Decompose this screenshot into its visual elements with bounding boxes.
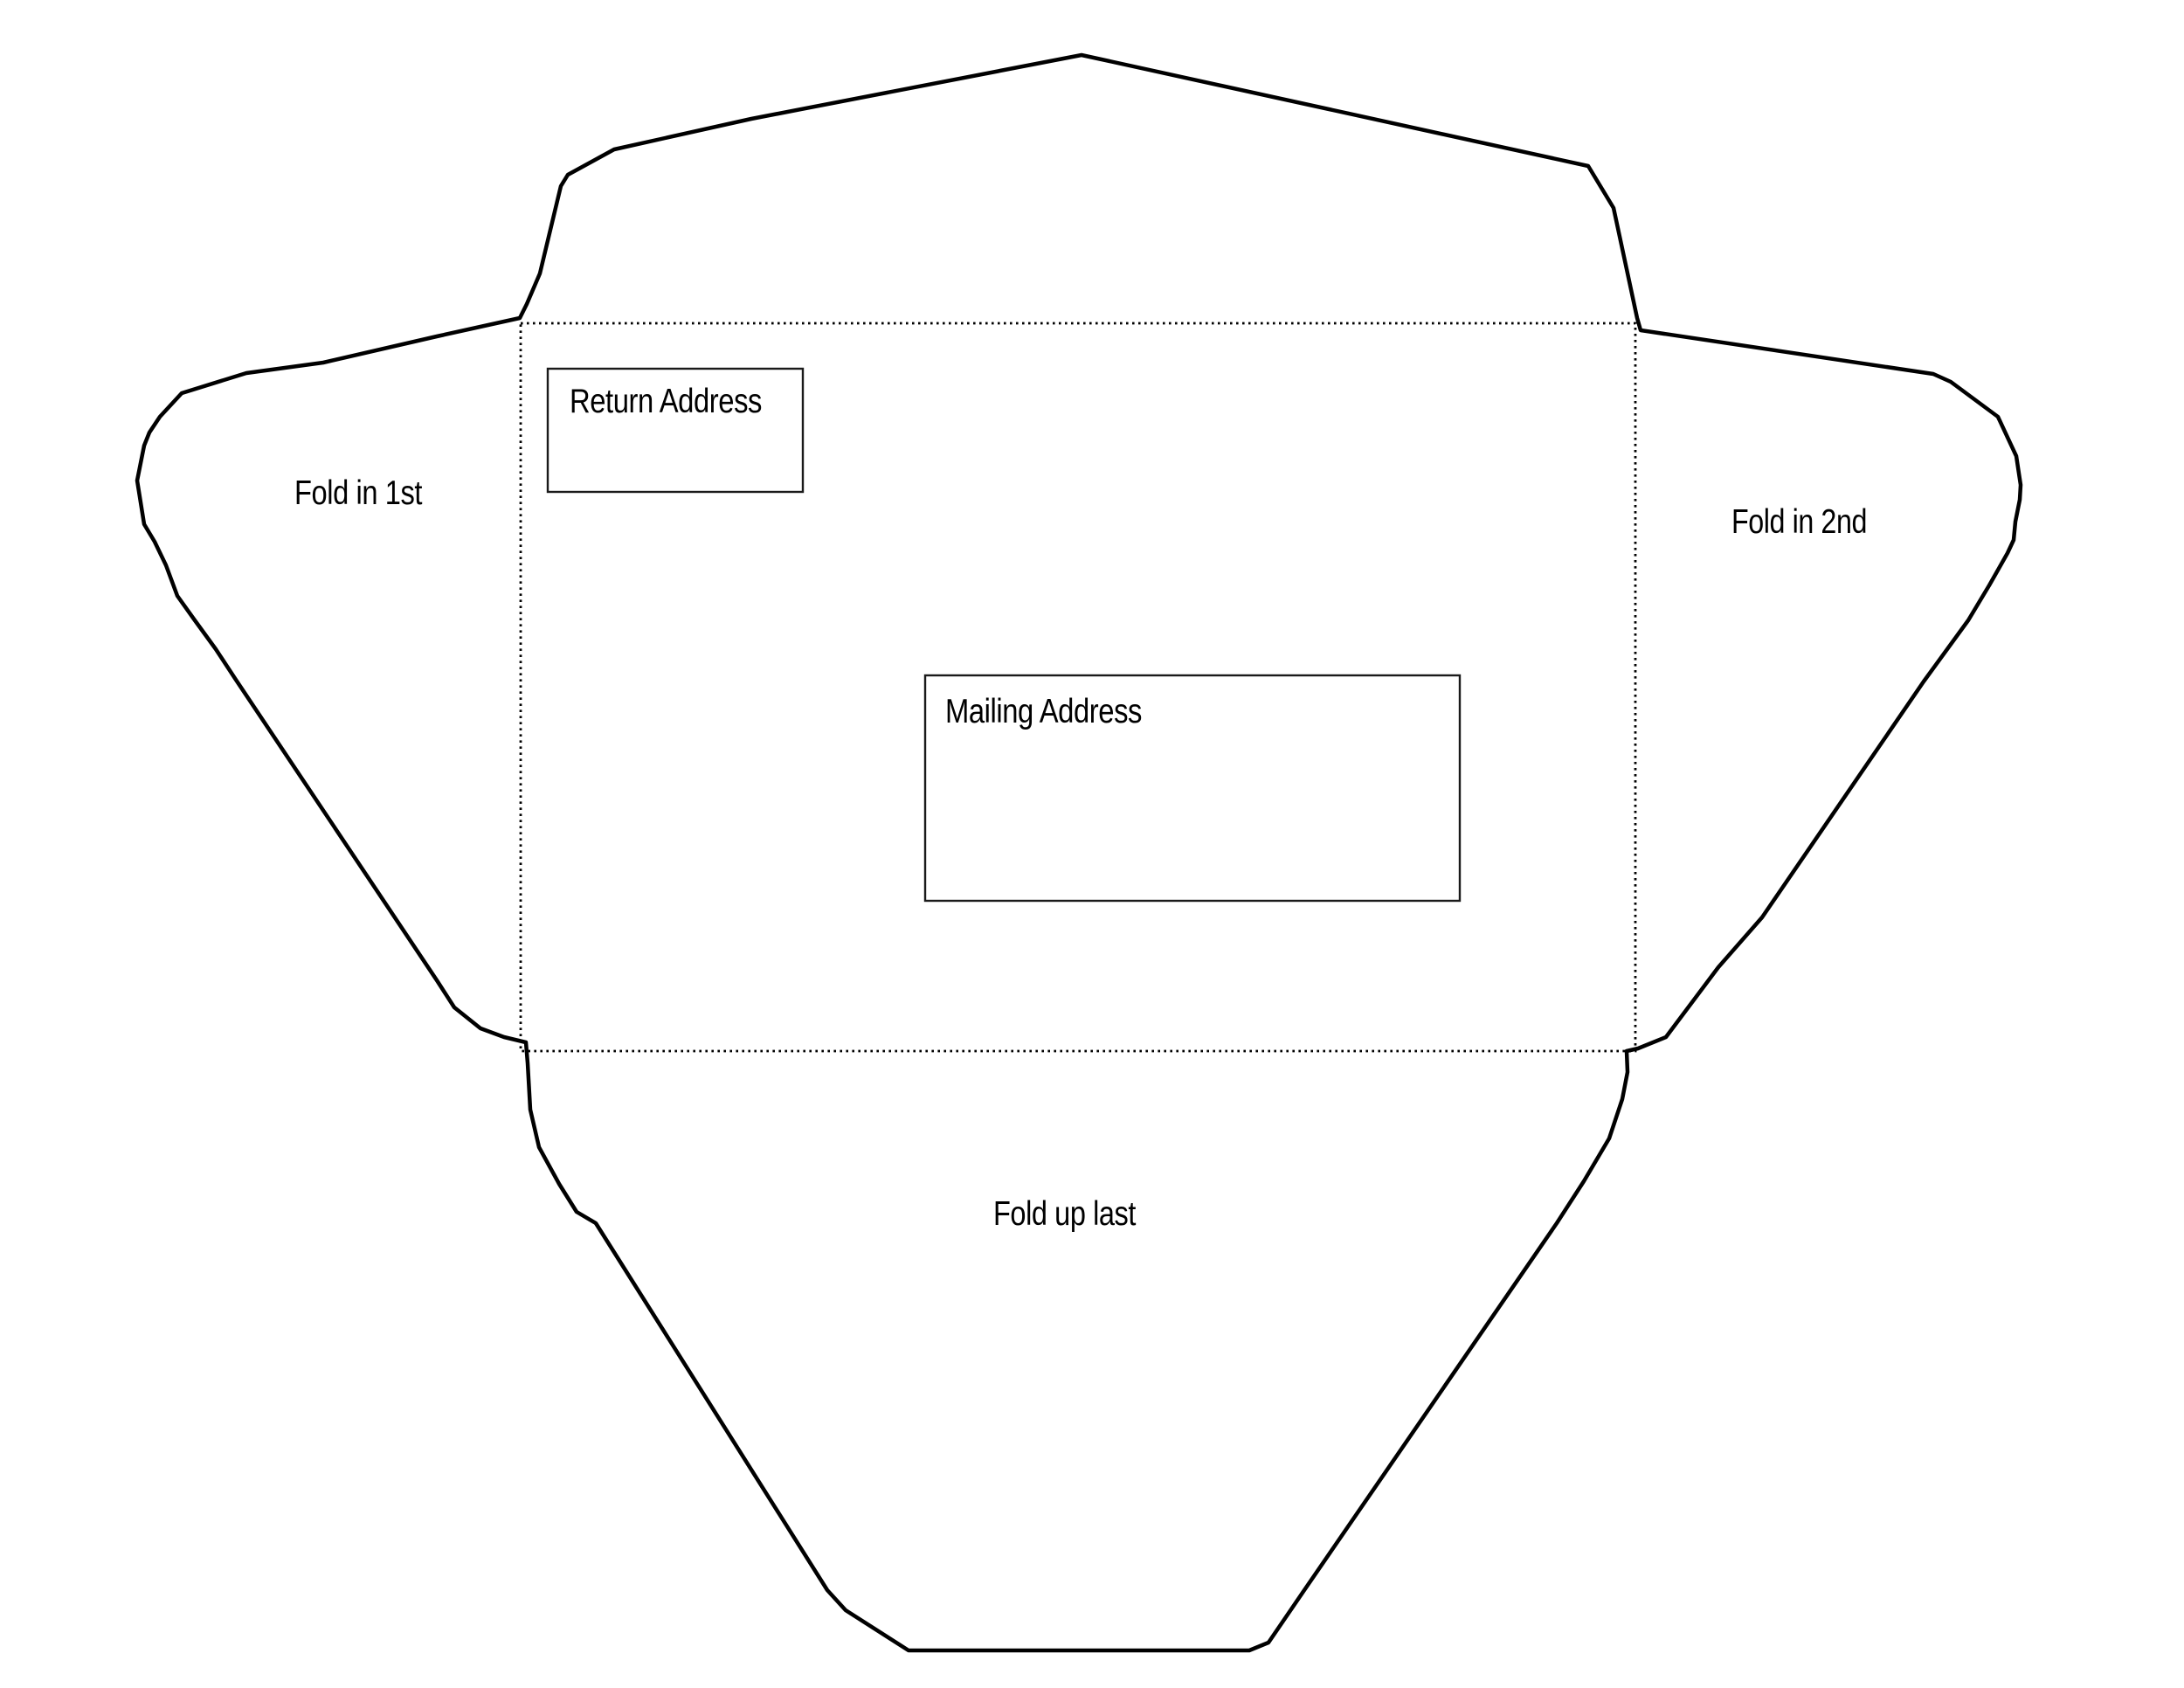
envelope-template-page: Return Address Mailing Address Fold in 1… [0, 0, 2184, 1688]
fold-up-last-label: Fold up last [993, 1195, 1137, 1233]
return-address-label: Return Address [570, 383, 762, 420]
fold-lines-rect [521, 323, 1635, 1051]
mailing-address-label: Mailing Address [945, 693, 1142, 730]
fold-in-1st-label: Fold in 1st [294, 474, 423, 512]
fold-in-2nd-label: Fold in 2nd [1731, 503, 1867, 541]
envelope-outline [137, 55, 2021, 1650]
envelope-template-canvas: Return Address Mailing Address Fold in 1… [0, 0, 2184, 1688]
